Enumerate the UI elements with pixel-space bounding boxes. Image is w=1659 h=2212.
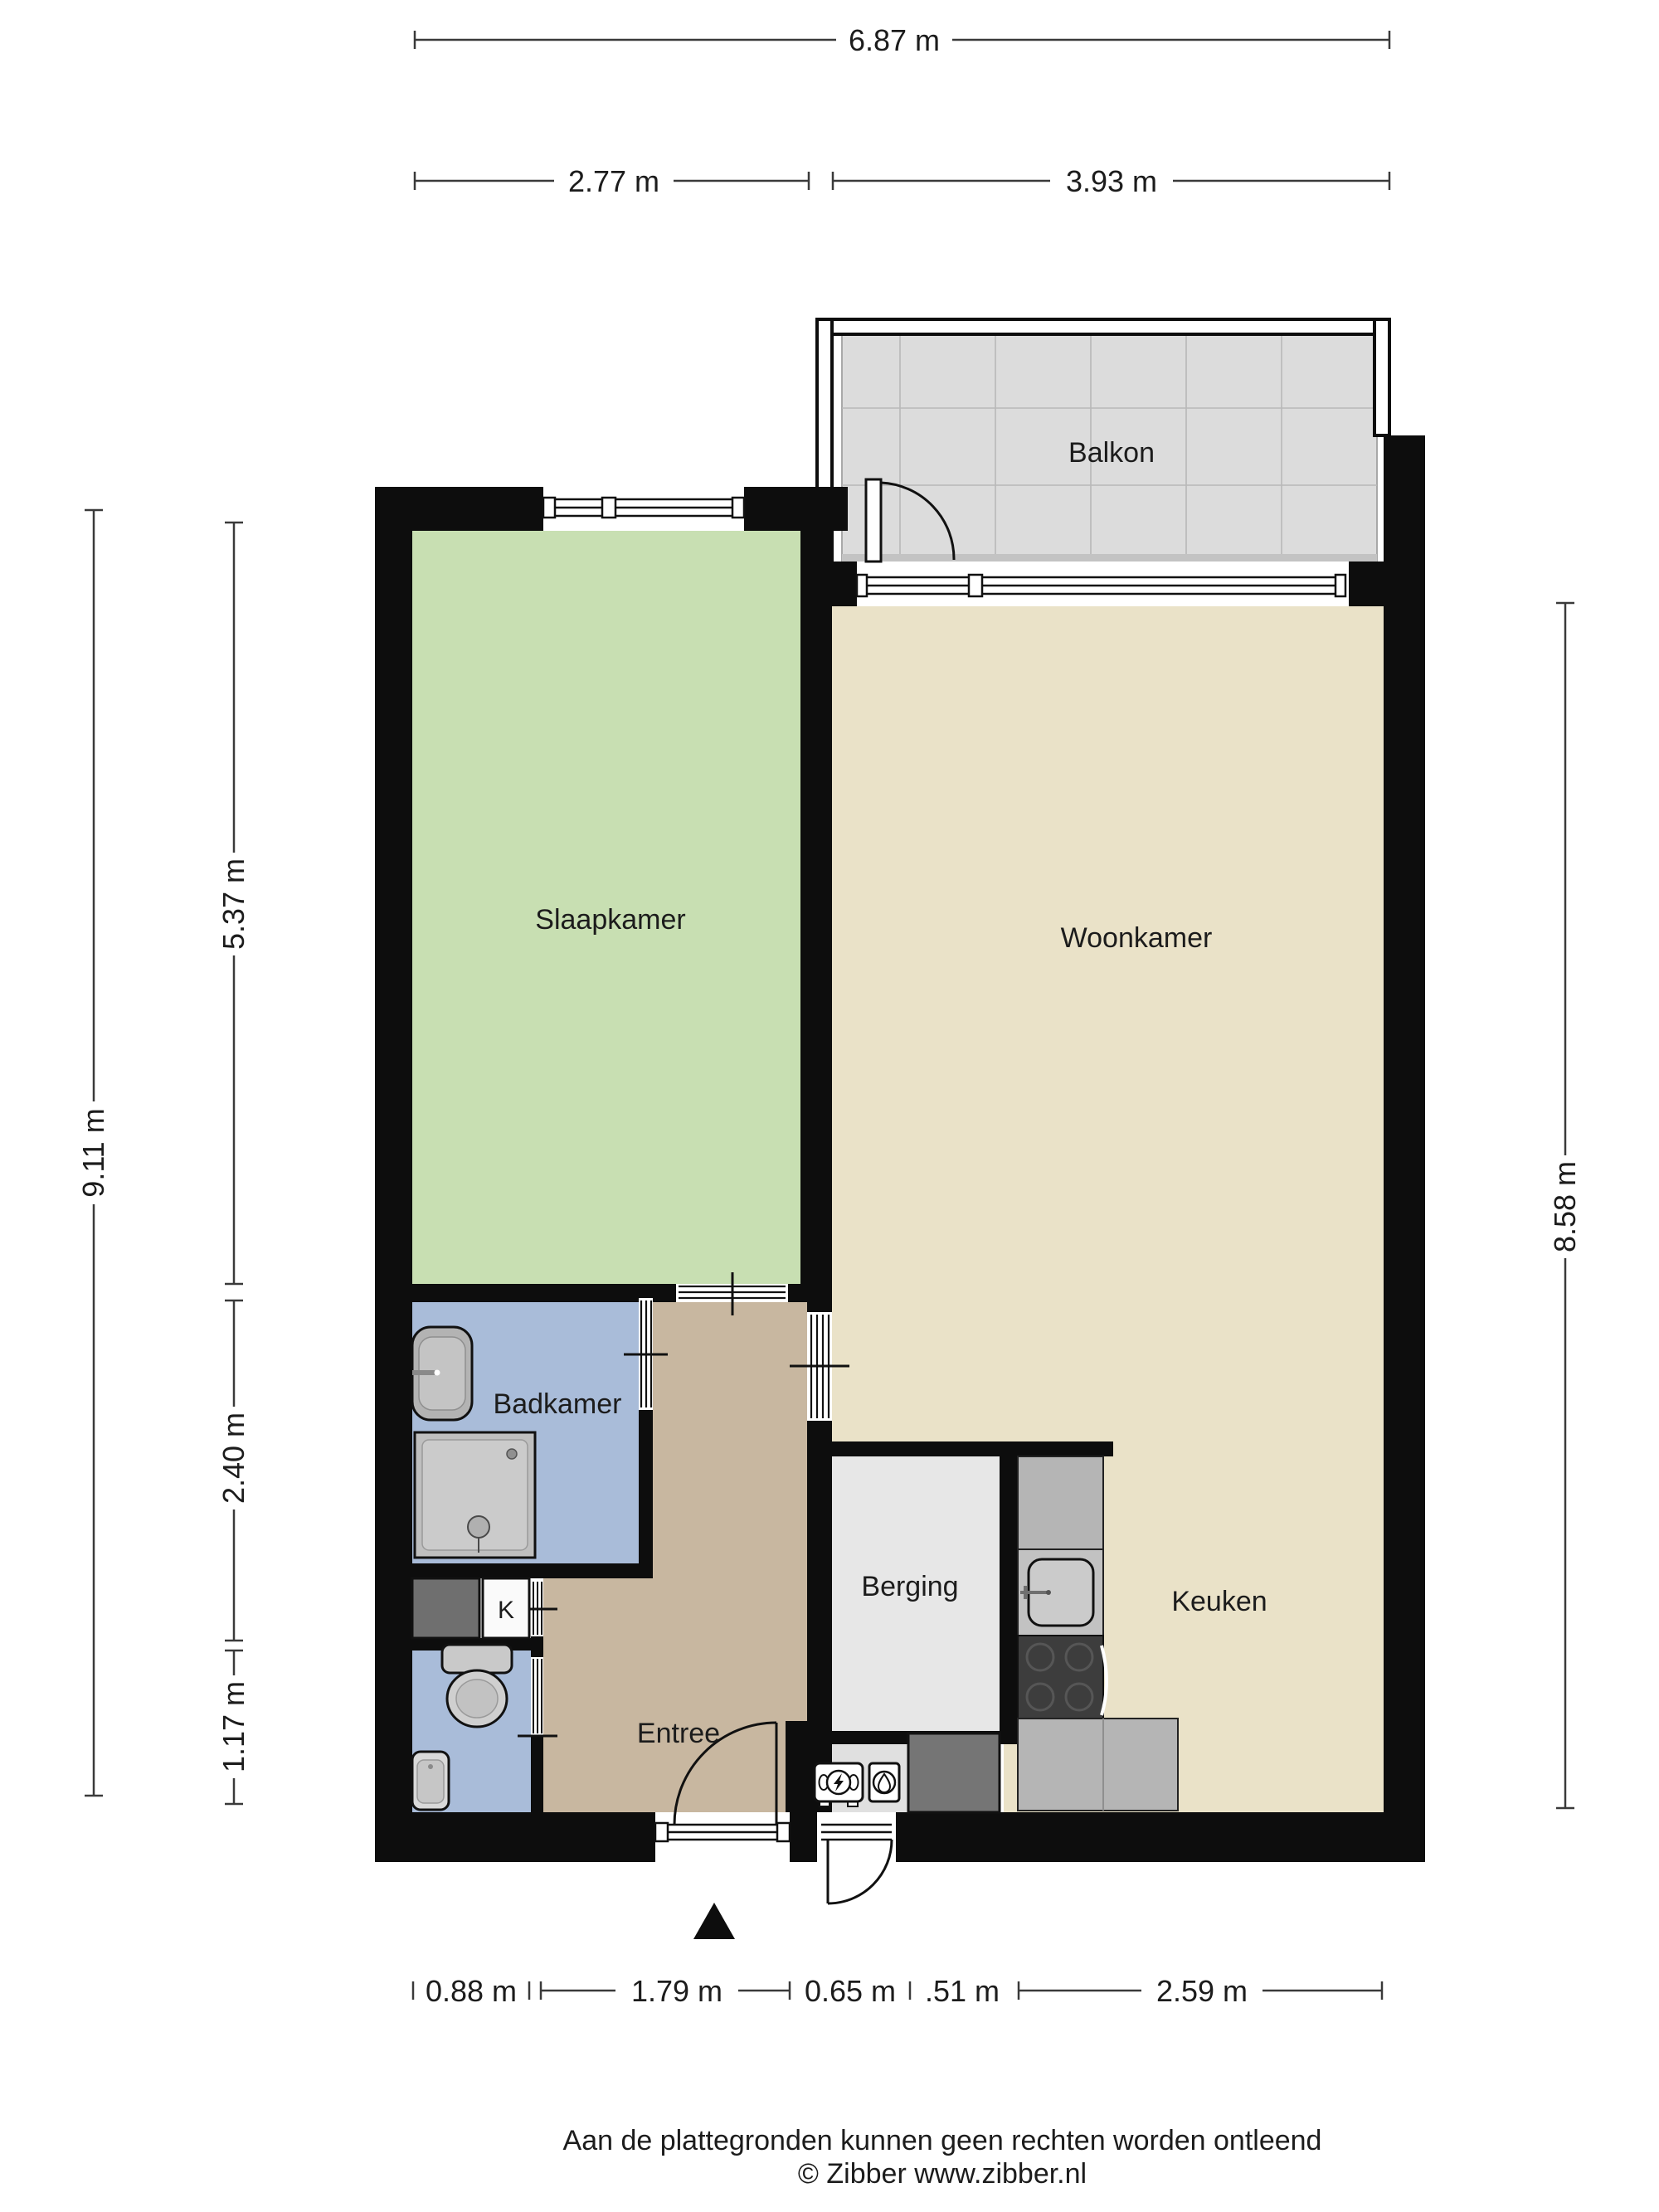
wall-bathroom-right-b (639, 1410, 653, 1578)
shaft-box (908, 1733, 1000, 1812)
wall-storage-top (832, 1441, 1113, 1456)
storage-label: Berging (861, 1571, 958, 1602)
wall-right (1384, 435, 1425, 1862)
north-arrow-icon (693, 1903, 735, 1939)
toilet-sink-icon (412, 1752, 449, 1810)
bedroom-window (543, 487, 744, 531)
room-floors (412, 531, 1384, 1812)
dim-left-lower-label: 1.17 m (216, 1681, 251, 1772)
wall-storage-right (1000, 1456, 1018, 1744)
wall-left (375, 487, 412, 1862)
wall-bedroom-bottom-a (377, 1284, 676, 1302)
wall-toilet-right-a (531, 1636, 543, 1657)
balcony-floor-edge (842, 554, 1377, 562)
bedroom-label: Slaapkamer (535, 904, 685, 936)
washing-machine-icon (412, 1578, 479, 1638)
dim-top-right-label: 3.93 m (1066, 164, 1157, 198)
footer: Aan de plattegronden kunnen geen rechten… (563, 2125, 1322, 2190)
dim-top-total-label: 6.87 m (849, 23, 940, 57)
footer-disclaimer: Aan de plattegronden kunnen geen rechten… (563, 2125, 1322, 2156)
hallway-label: Entree (637, 1718, 720, 1749)
dim-bottom-4-label: .51 m (925, 1974, 1000, 2008)
wall-bottom-a (375, 1812, 655, 1862)
wall-top-right (744, 487, 848, 531)
wall-bedroom-bottom-b (788, 1284, 832, 1302)
stove-icon (1018, 1636, 1107, 1719)
kitchen-label: Keuken (1171, 1586, 1267, 1617)
balcony-window (857, 562, 1349, 606)
footer-credit: © Zibber www.zibber.nl (798, 2158, 1087, 2190)
wall-balcony-band-right-stub (1349, 562, 1384, 606)
dim-bottom-2-label: 1.79 m (631, 1974, 722, 2008)
shower-icon (415, 1432, 535, 1558)
bathroom-sink-icon (412, 1327, 472, 1420)
dim-left-middle-label: 2.40 m (216, 1412, 251, 1504)
dim-right-total-label: 8.58 m (1548, 1161, 1582, 1252)
living-room-label: Woonkamer (1061, 922, 1213, 954)
dim-bottom-5-label: 2.59 m (1156, 1974, 1248, 2008)
wall-balcony-band-left-stub (832, 562, 857, 606)
wall-bottom-c (896, 1812, 1425, 1862)
balcony-label: Balkon (1068, 437, 1155, 469)
floorplan-page: Balkon Slaapkamer Woonkamer Badkamer K B… (0, 0, 1659, 2212)
meter-cupboard-door (817, 1812, 896, 1903)
bathroom-label: Badkamer (494, 1388, 622, 1420)
electric-meter-icon (815, 1763, 863, 1806)
wall-top-left (375, 487, 543, 531)
toilet-icon (442, 1645, 512, 1727)
wall-meter-left-chunk (786, 1721, 817, 1812)
dim-top-left-label: 2.77 m (568, 164, 659, 198)
dim-left-total-label: 9.11 m (76, 1108, 110, 1197)
wall-toilet-right-b (531, 1736, 543, 1812)
dim-bottom-3-label: 0.65 m (805, 1974, 896, 2008)
dim-bottom-1-label: 0.88 m (426, 1974, 517, 2008)
wall-bathroom-right-a (639, 1284, 653, 1298)
wall-hall-living-a (807, 1302, 832, 1312)
floorplan-drawing: Balkon Slaapkamer Woonkamer Badkamer K B… (0, 0, 1659, 2212)
gas-meter-icon (869, 1763, 899, 1801)
wall-bottom-b (790, 1812, 817, 1862)
wall-bedroom-living (800, 531, 832, 1302)
wall-bathroom-bottom (412, 1563, 639, 1578)
closet-label: K (498, 1597, 514, 1624)
dim-left-upper-label: 5.37 m (216, 858, 251, 950)
